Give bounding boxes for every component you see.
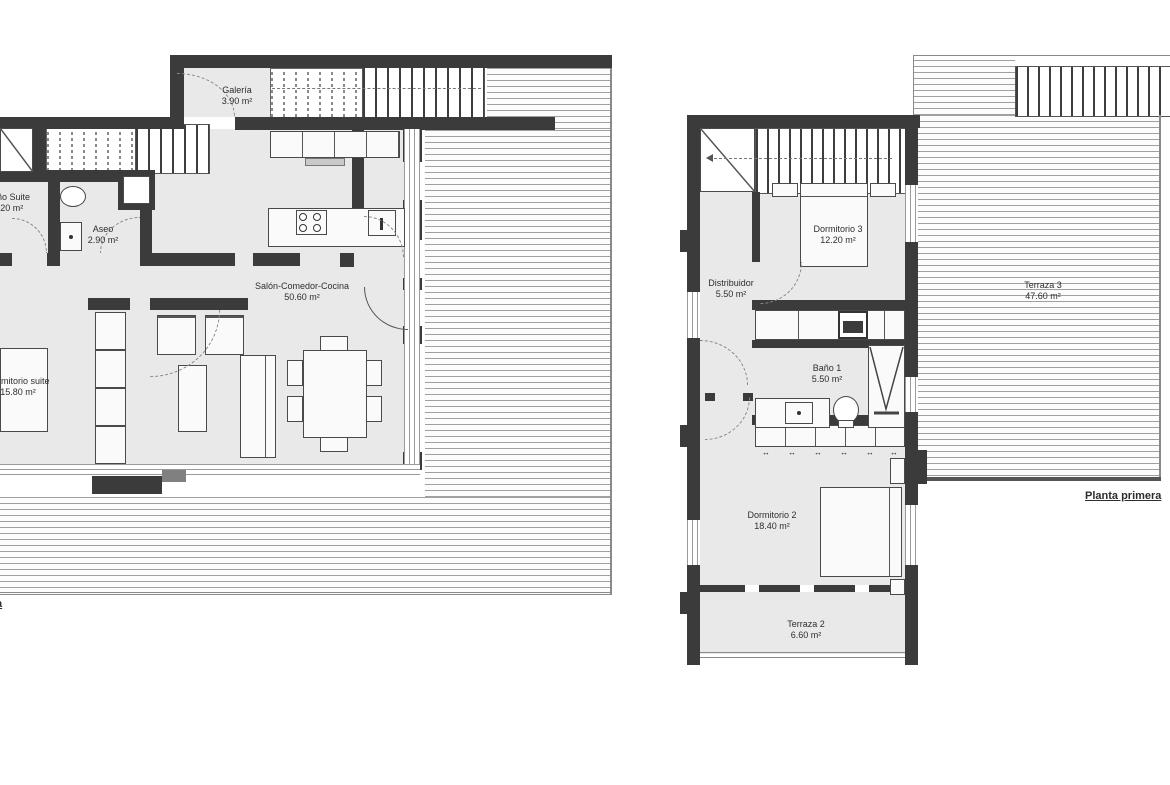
wall-segment [253,253,300,266]
terrace3-stair [1015,66,1170,117]
bottom-wall-block-gray [162,470,186,482]
wardrobe [95,426,126,464]
wall-pilaster [905,450,927,484]
sliding-wardrobe [755,425,905,447]
deck-edge-line [610,68,612,595]
room-label-galeria: Galería 3.90 m² [222,85,253,106]
washbasin-dot [69,235,73,239]
stair-walkline-arrow [706,154,713,162]
room-label-terraza2: Terraza 2 6.60 m² [787,619,825,640]
wardrobe [95,350,126,388]
slide-arrow: ↔ [788,449,796,457]
room-name: Baño Suite [0,192,30,203]
room-label-distribuidor: Distribuidor 5.50 m² [708,278,754,299]
wardrobe [95,388,126,426]
wall-segment [33,128,46,176]
room-name: Terraza 2 [787,619,825,630]
floor-label-planta-primera: Planta primera [1085,490,1161,502]
bedroom-wall [150,298,248,310]
bottom-glazing [0,464,420,476]
nightstand [890,579,905,595]
wall-segment [47,253,60,266]
terrace2-bottom-edge [700,652,905,653]
wall-nub [680,592,687,614]
terrace3-bottom-edge [914,477,1161,481]
dining-chair [366,360,382,386]
nightstand [772,183,798,197]
room-name: Dormitorio 2 [747,510,796,521]
room-area: 6.60 m² [787,630,825,641]
stair-upper-flight-2 [362,66,485,119]
shower-tray [123,176,150,204]
left-wall-window [687,292,700,338]
room-name: Baño 1 [812,363,843,374]
room-area: 47.60 m² [1024,291,1062,302]
room-area: 5.50 m² [812,374,843,385]
room-area: 50.60 m² [255,292,349,303]
left-wall-window [687,520,700,565]
room-name: Aseo [88,224,119,235]
nightstand [890,458,905,484]
hob-burner [313,213,321,221]
room-area: 5.20 m² [0,203,30,214]
room-name: Galería [222,85,253,96]
sofa [240,355,276,458]
wall-nub [340,253,354,267]
terrace3-right-edge [1159,115,1161,480]
stair-lower-flight-2 [135,124,210,174]
left-wall [687,115,700,665]
toilet [60,186,86,207]
dorm3-distribuidor-wall [752,192,760,262]
right-wall-window [905,505,918,565]
coffee-table [178,365,207,432]
floor-plan-sheet: Galería 3.90 m² Baño Suite 5.20 m² Aseo … [0,0,1170,785]
wardrobe [95,312,126,350]
room-area: 12.20 m² [813,235,862,246]
room-name: Terraza 3 [1024,280,1062,291]
hob-burner [299,213,307,221]
room-label-terraza3: Terraza 3 47.60 m² [1024,280,1062,301]
dining-chair [287,360,303,386]
deck-right [425,130,610,497]
wall-nub [680,230,687,252]
room-label-salon: Salón-Comedor-Cocina 50.60 m² [255,281,349,302]
room-area: 2.90 m² [88,235,119,246]
bed-dorm2 [820,487,902,577]
dining-chair [366,396,382,422]
slide-arrow: ↔ [866,449,874,457]
slide-arrow: ↔ [840,449,848,457]
room-area: 5.50 m² [708,289,754,300]
floor-label-planta-baja-fragment: a [0,598,2,610]
wall-segment [140,253,235,266]
closet-row [755,310,905,340]
wall-segment [235,117,555,130]
room-area: 18.40 m² [747,521,796,532]
terrace2-door-gap [855,585,869,592]
shower-drain-symbol [868,345,905,428]
dining-chair [320,437,348,452]
right-wall-window [905,377,918,412]
right-wall-window [905,185,918,242]
room-name: Dormitorio 3 [813,224,862,235]
dining-table [303,350,367,438]
wall-nub [680,425,687,447]
slide-arrow: ↔ [762,449,770,457]
hob-burner [313,224,321,232]
room-label-bano1: Baño 1 5.50 m² [812,363,843,384]
room-label-dormitorio-suite: Dormitorio suite 15.80 m² [0,376,50,397]
slide-arrow: ↔ [890,449,898,457]
top-wall [687,115,920,128]
hob-burner [299,224,307,232]
terrace2-bottom-edge [700,657,905,658]
dining-chair [320,336,348,351]
room-area: 3.90 m² [222,96,253,107]
room-label-dormitorio3: Dormitorio 3 12.20 m² [813,224,862,245]
kitchen-counter [270,131,400,158]
stair-diagonal-line [0,128,33,172]
stair-walkline [272,88,481,89]
terrace2-door-gap [800,585,814,592]
kitchen-counter-tray [305,158,345,166]
wall-segment [48,180,60,263]
terrace2-door-gap [745,585,759,592]
room-label-bano-suite: Baño Suite 5.20 m² [0,192,30,213]
room-name: Distribuidor [708,278,754,289]
top-wall [175,55,612,68]
room-label-aseo: Aseo 2.90 m² [88,224,119,245]
bath-sink-dot [797,411,801,415]
room-area: 15.80 m² [0,387,50,398]
terrace3-deck-upper [914,60,1015,115]
bedroom-wall [88,298,130,310]
room-label-dormitorio2: Dormitorio 2 18.40 m² [747,510,796,531]
toilet-base [838,420,854,428]
room-name: Dormitorio suite [0,376,50,387]
nightstand [870,183,896,197]
stair-walkline [714,158,892,159]
wall-segment [0,253,12,266]
stair-upper-flight [270,68,364,119]
closet-top-wall [752,300,905,310]
slide-arrow: ↔ [814,449,822,457]
tv-unit-inner [843,321,863,333]
terrace3-top-edge [913,55,1170,56]
room-name: Salón-Comedor-Cocina [255,281,349,292]
dining-chair [287,396,303,422]
deck-bottom [0,497,610,595]
